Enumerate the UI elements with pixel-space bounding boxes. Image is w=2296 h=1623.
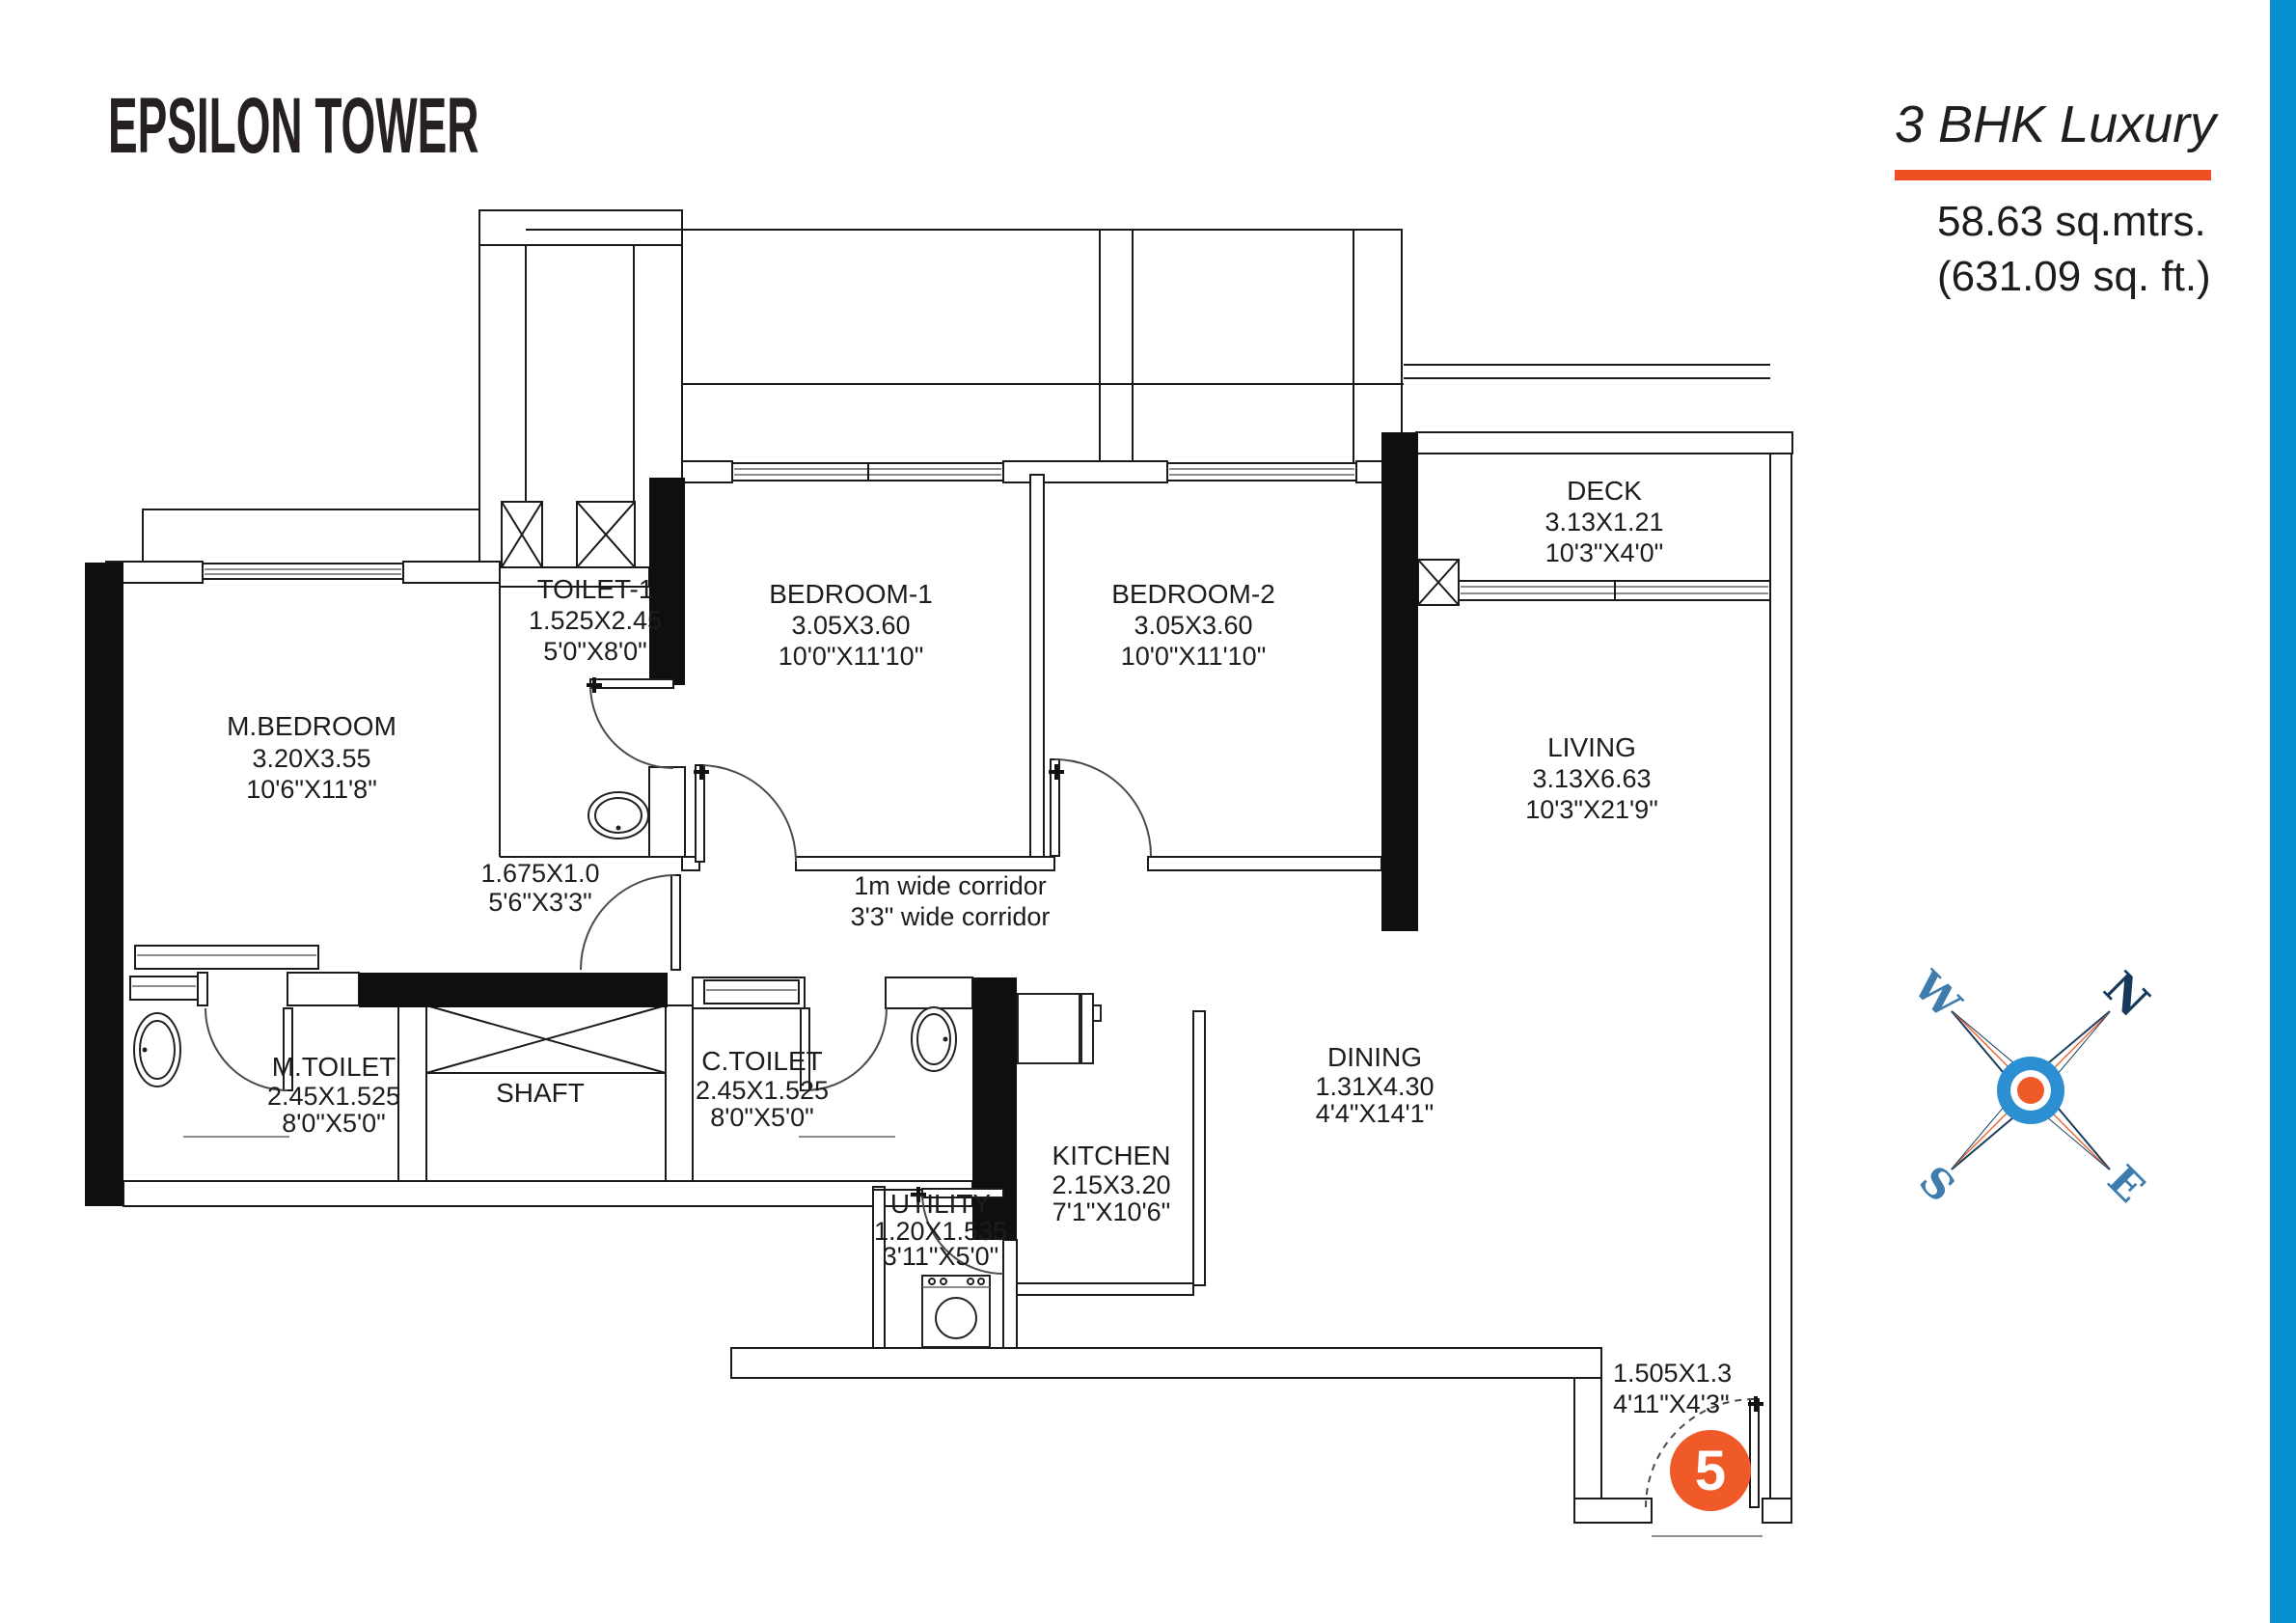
svg-text:1m wide corridor: 1m wide corridor <box>854 871 1047 900</box>
svg-text:UTILITY: UTILITY <box>890 1189 992 1219</box>
svg-text:3.13X6.63: 3.13X6.63 <box>1532 764 1651 793</box>
label-living: LIVING 3.13X6.63 10'3"X21'9" <box>1525 732 1658 824</box>
svg-text:4'11"X4'3": 4'11"X4'3" <box>1613 1389 1730 1418</box>
svg-text:2.15X3.20: 2.15X3.20 <box>1052 1170 1170 1199</box>
svg-text:3'3" wide corridor: 3'3" wide corridor <box>851 902 1051 931</box>
svg-text:7'1"X10'6": 7'1"X10'6" <box>1052 1197 1171 1226</box>
svg-text:2.45X1.525: 2.45X1.525 <box>267 1082 400 1111</box>
label-ctoilet: C.TOILET 2.45X1.525 8'0"X5'0" <box>696 1046 829 1132</box>
svg-text:M.BEDROOM: M.BEDROOM <box>227 711 396 741</box>
svg-text:LIVING: LIVING <box>1547 732 1636 762</box>
compass-rose: N W S E <box>1903 961 2159 1211</box>
svg-text:5'6"X3'3": 5'6"X3'3" <box>488 888 592 917</box>
svg-text:3.20X3.55: 3.20X3.55 <box>252 744 370 773</box>
svg-text:3'11"X5'0": 3'11"X5'0" <box>883 1242 999 1271</box>
label-bedroom1: BEDROOM-1 3.05X3.60 10'0"X11'10" <box>769 579 933 671</box>
svg-text:KITCHEN: KITCHEN <box>1052 1141 1171 1170</box>
svg-text:SHAFT: SHAFT <box>496 1078 585 1108</box>
compass-hub-center <box>2017 1077 2044 1104</box>
svg-text:M.TOILET: M.TOILET <box>272 1052 396 1082</box>
svg-text:5'0"X8'0": 5'0"X8'0" <box>543 637 647 666</box>
svg-text:10'3"X4'0": 10'3"X4'0" <box>1545 538 1664 567</box>
label-toilet1: TOILET-1 1.525X2.45 5'0"X8'0" <box>529 574 662 666</box>
label-kitchen: KITCHEN 2.15X3.20 7'1"X10'6" <box>1052 1141 1170 1226</box>
washbasin-toilet1 <box>588 792 648 839</box>
svg-text:BEDROOM-1: BEDROOM-1 <box>769 579 933 609</box>
label-mtoilet: M.TOILET 2.45X1.525 8'0"X5'0" <box>267 1052 400 1138</box>
label-mbedroom: M.BEDROOM 3.20X3.55 10'6"X11'8" <box>227 711 396 804</box>
svg-text:4'4"X14'1": 4'4"X14'1" <box>1316 1099 1435 1128</box>
washbasin-ctoilet <box>912 1007 956 1071</box>
label-bedroom2: BEDROOM-2 3.05X3.60 10'0"X11'10" <box>1111 579 1275 671</box>
compass-east-label: E <box>2098 1156 2153 1211</box>
svg-text:1.675X1.0: 1.675X1.0 <box>480 859 599 888</box>
svg-text:TOILET-1: TOILET-1 <box>537 574 654 604</box>
svg-text:C.TOILET: C.TOILET <box>701 1046 823 1076</box>
svg-text:1.505X1.3: 1.505X1.3 <box>1613 1359 1732 1388</box>
unit-number-badge: 5 <box>1670 1430 1751 1511</box>
label-entry-dim: 1.505X1.3 4'11"X4'3" <box>1613 1359 1732 1418</box>
svg-text:2.45X1.525: 2.45X1.525 <box>696 1076 829 1105</box>
label-corridor: 1m wide corridor 3'3" wide corridor <box>851 871 1051 931</box>
label-passage: 1.675X1.0 5'6"X3'3" <box>480 859 599 917</box>
label-shaft: SHAFT <box>496 1078 585 1108</box>
svg-text:3.13X1.21: 3.13X1.21 <box>1544 508 1663 536</box>
label-deck: DECK 3.13X1.21 10'3"X4'0" <box>1544 476 1663 567</box>
label-utility: UTILITY 1.20X1.535 3'11"X5'0" <box>874 1189 1007 1271</box>
svg-text:8'0"X5'0": 8'0"X5'0" <box>710 1103 814 1132</box>
kitchen-counter <box>1018 994 1101 1063</box>
svg-text:5: 5 <box>1695 1440 1726 1502</box>
svg-text:DINING: DINING <box>1327 1042 1422 1072</box>
svg-text:DECK: DECK <box>1567 476 1642 506</box>
washbasin-mtoilet <box>134 1013 180 1087</box>
svg-text:3.05X3.60: 3.05X3.60 <box>791 611 910 640</box>
svg-text:10'3"X21'9": 10'3"X21'9" <box>1525 795 1658 824</box>
svg-text:8'0"X5'0": 8'0"X5'0" <box>282 1109 386 1138</box>
svg-text:10'6"X11'8": 10'6"X11'8" <box>246 775 377 804</box>
floor-plan-page: EPSILON TOWER 3 BHK Luxury 58.63 sq.mtrs… <box>0 0 2296 1623</box>
svg-text:10'0"X11'10": 10'0"X11'10" <box>1121 642 1267 671</box>
svg-text:1.525X2.45: 1.525X2.45 <box>529 606 662 635</box>
svg-text:1.31X4.30: 1.31X4.30 <box>1315 1072 1434 1101</box>
washing-machine <box>922 1276 990 1347</box>
label-dining: DINING 1.31X4.30 4'4"X14'1" <box>1315 1042 1434 1128</box>
floor-plan-drawing: M.BEDROOM 3.20X3.55 10'6"X11'8" TOILET-1… <box>0 0 2296 1623</box>
svg-text:10'0"X11'10": 10'0"X11'10" <box>779 642 924 671</box>
svg-text:3.05X3.60: 3.05X3.60 <box>1134 611 1252 640</box>
svg-text:BEDROOM-2: BEDROOM-2 <box>1111 579 1275 609</box>
